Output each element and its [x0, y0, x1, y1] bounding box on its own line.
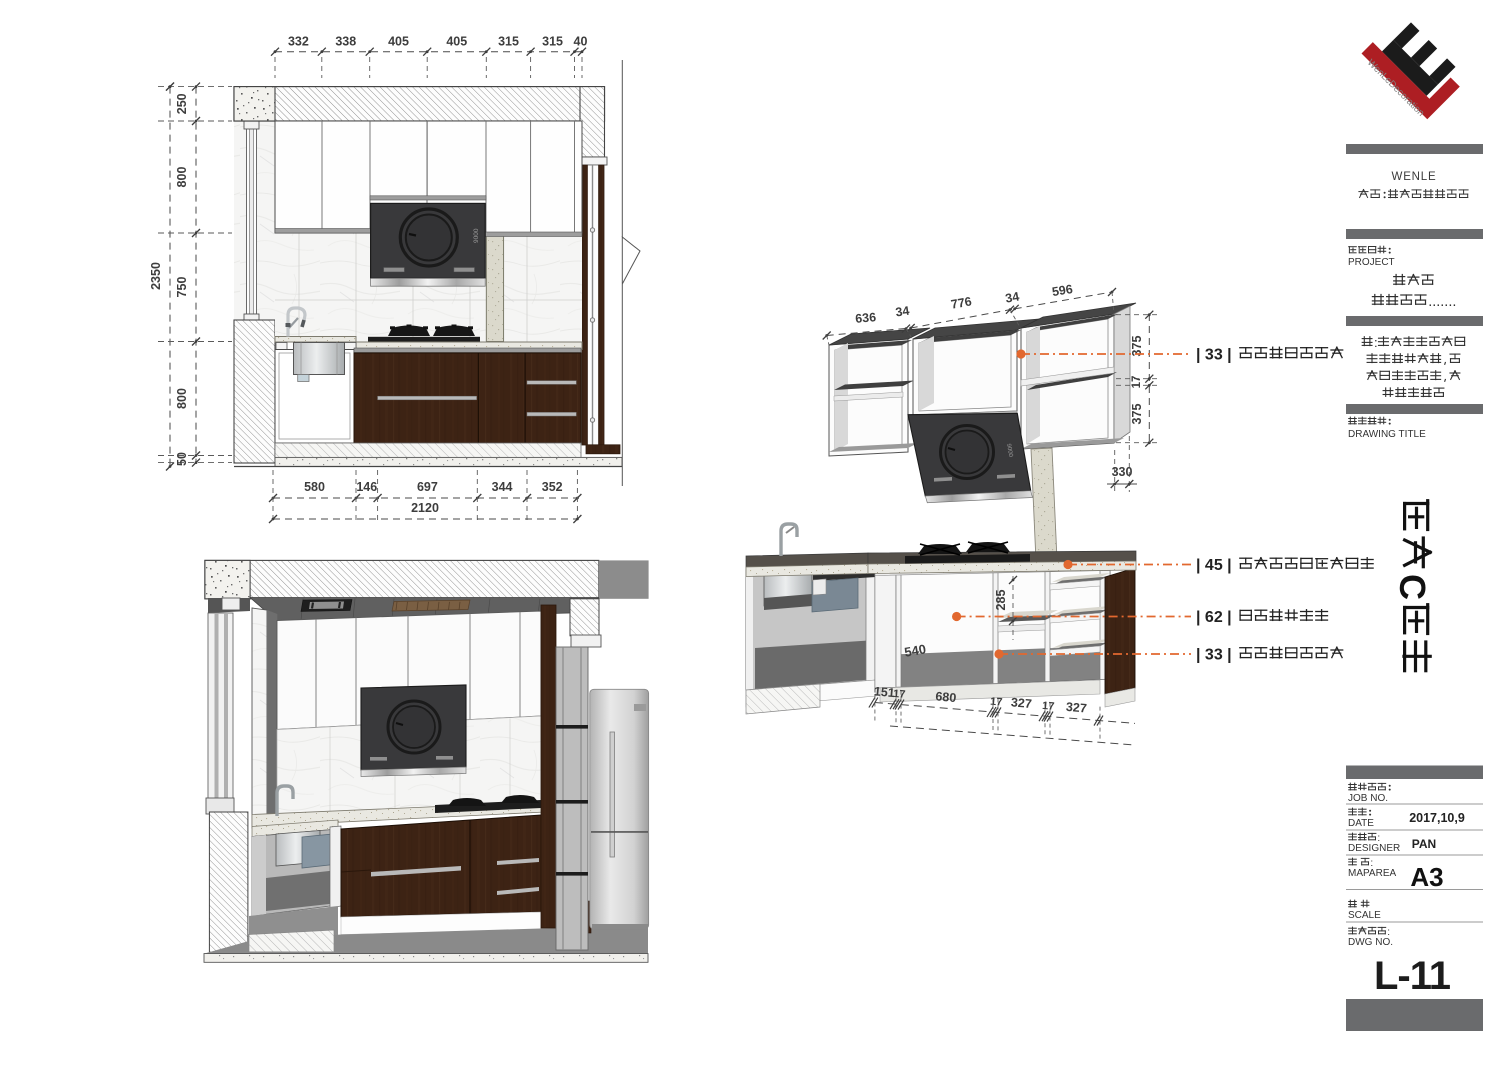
svg-text:800: 800 — [175, 388, 189, 409]
svg-text:C: C — [1392, 574, 1433, 600]
svg-text:JOB NO.: JOB NO. — [1348, 793, 1388, 804]
svg-text:PAN: PAN — [1412, 837, 1436, 851]
svg-text:| 33 |: | 33 | — [1196, 347, 1232, 364]
svg-text:34: 34 — [895, 304, 911, 320]
svg-text:2350: 2350 — [149, 262, 163, 290]
svg-text:327: 327 — [1065, 700, 1087, 716]
svg-text:DRAWING TITLE: DRAWING TITLE — [1348, 429, 1426, 440]
svg-text:580: 580 — [304, 480, 325, 494]
svg-text:338: 338 — [335, 35, 356, 49]
svg-text:34: 34 — [1004, 289, 1020, 305]
svg-text:9000: 9000 — [473, 228, 480, 243]
svg-text:17: 17 — [990, 696, 1003, 709]
svg-text:40: 40 — [574, 35, 588, 49]
svg-text:DWG NO.: DWG NO. — [1348, 937, 1393, 948]
svg-text:50: 50 — [175, 452, 189, 466]
svg-text::: : — [1374, 335, 1378, 350]
svg-text:800: 800 — [175, 167, 189, 188]
svg-text:WENLE: WENLE — [1392, 171, 1437, 183]
svg-text:| 33 |: | 33 | — [1196, 647, 1232, 664]
svg-text:344: 344 — [492, 480, 513, 494]
svg-text:A3: A3 — [1410, 862, 1443, 892]
svg-text:| 62 |: | 62 | — [1196, 609, 1232, 626]
svg-text:405: 405 — [388, 35, 409, 49]
svg-text:.......: ....... — [1428, 294, 1456, 310]
svg-text:2120: 2120 — [411, 501, 439, 515]
svg-text:17: 17 — [1042, 700, 1055, 713]
svg-text:697: 697 — [417, 480, 438, 494]
svg-text:| 45 |: | 45 | — [1196, 557, 1232, 574]
svg-text:L-11: L-11 — [1374, 954, 1451, 998]
svg-text:315: 315 — [542, 35, 563, 49]
svg-text:17: 17 — [893, 688, 906, 701]
svg-text:2017,10,9: 2017,10,9 — [1409, 811, 1465, 825]
svg-text:PROJECT: PROJECT — [1348, 257, 1395, 268]
svg-text:285: 285 — [994, 590, 1008, 611]
svg-text:332: 332 — [288, 35, 309, 49]
svg-text:750: 750 — [175, 277, 189, 298]
svg-text:375: 375 — [1130, 404, 1144, 425]
svg-text:680: 680 — [935, 689, 957, 705]
svg-text:405: 405 — [446, 35, 467, 49]
svg-text:250: 250 — [175, 93, 189, 114]
svg-text:DATE: DATE — [1348, 818, 1374, 829]
svg-text:352: 352 — [542, 480, 563, 494]
svg-text:315: 315 — [498, 35, 519, 49]
svg-text:17: 17 — [1131, 376, 1143, 389]
svg-text:MAPAREA: MAPAREA — [1348, 868, 1396, 879]
svg-text:SCALE: SCALE — [1348, 910, 1381, 921]
svg-text:DESIGNER: DESIGNER — [1348, 843, 1400, 854]
svg-text:146: 146 — [356, 480, 377, 494]
svg-text:636: 636 — [855, 310, 877, 326]
svg-text:327: 327 — [1010, 695, 1032, 711]
svg-text:330: 330 — [1112, 465, 1133, 479]
